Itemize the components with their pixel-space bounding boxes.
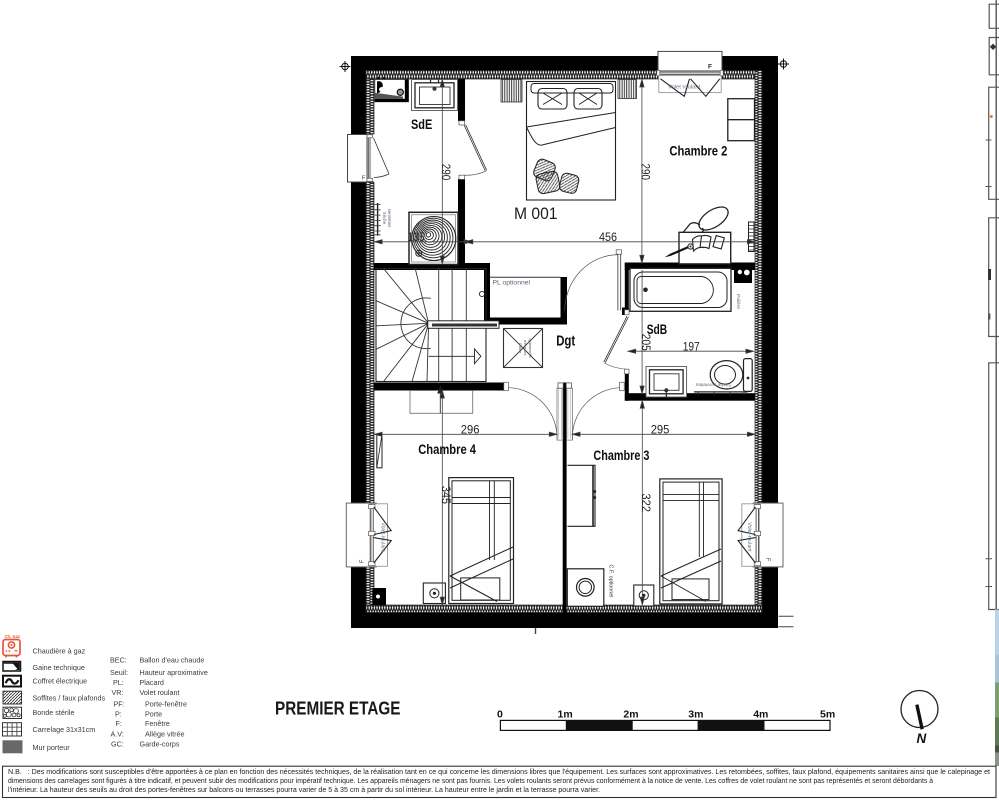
svg-text:Porte: Porte <box>145 709 162 718</box>
svg-text:3m: 3m <box>688 709 703 721</box>
svg-text:322: 322 <box>639 494 651 513</box>
svg-text:Fenêtre: Fenêtre <box>145 719 170 728</box>
svg-text:PL:: PL: <box>113 678 124 687</box>
svg-text:VR:: VR: <box>112 688 124 697</box>
svg-text:4m: 4m <box>753 709 768 721</box>
svg-text:PF:: PF: <box>114 700 125 709</box>
svg-text:Placard: Placard <box>140 678 164 687</box>
svg-text:C.F. optionnel: C.F. optionnel <box>608 565 614 598</box>
svg-text:Bonde stérile: Bonde stérile <box>33 708 75 717</box>
svg-text:197: 197 <box>683 341 700 353</box>
svg-text:295: 295 <box>651 425 670 437</box>
svg-text:F: F <box>708 64 712 71</box>
svg-text:Mur porteur: Mur porteur <box>33 743 71 752</box>
svg-text:Sèche: Sèche <box>382 212 387 225</box>
svg-text:Allège vitrée: Allège vitrée <box>145 729 185 738</box>
svg-text:5m: 5m <box>820 709 835 721</box>
svg-text:SdE: SdE <box>411 116 432 132</box>
svg-text:optionnelle: optionnelle <box>528 338 533 358</box>
svg-text:135: 135 <box>408 232 425 244</box>
svg-text:Sèche serviettes: Sèche serviettes <box>695 382 731 388</box>
svg-text:SdB: SdB <box>647 321 668 337</box>
svg-text:Hauteur aproximative: Hauteur aproximative <box>140 668 208 677</box>
svg-text:Soffites / faux plafonds: Soffites / faux plafonds <box>33 694 106 703</box>
svg-text:A.V:: A.V: <box>111 729 124 738</box>
svg-text:Chaudière à gaz: Chaudière à gaz <box>33 647 86 656</box>
svg-text:Porte-fenêtre: Porte-fenêtre <box>145 700 187 709</box>
svg-text:M 001: M 001 <box>514 205 558 223</box>
svg-text:l'intérieur. La hauteur des se: l'intérieur. La hauteur des seuils au dr… <box>8 787 600 794</box>
svg-text:1m: 1m <box>558 709 573 721</box>
svg-text:PL optionnel: PL optionnel <box>493 280 531 287</box>
svg-text:Gaine technique: Gaine technique <box>33 663 85 672</box>
svg-text:Palière: Palière <box>735 294 741 309</box>
svg-text:456: 456 <box>599 232 617 244</box>
svg-text:Volet roulant: Volet roulant <box>140 688 180 697</box>
svg-text:N.B. : Des modifications son: N.B. : Des modifications sont susceptibl… <box>8 769 990 776</box>
svg-text:serviettes: serviettes <box>387 209 392 229</box>
svg-text:Chambre 3: Chambre 3 <box>593 447 649 463</box>
svg-text:Dgt: Dgt <box>556 333 575 349</box>
svg-text:Chambre 4: Chambre 4 <box>418 441 476 457</box>
svg-text:Volet-roulant: Volet-roulant <box>380 522 386 552</box>
svg-text:Coffret électrique: Coffret électrique <box>33 677 88 686</box>
svg-text:296: 296 <box>461 425 480 437</box>
svg-text:Gaine: Gaine <box>518 343 523 354</box>
svg-text:Seuil:: Seuil: <box>110 668 128 677</box>
svg-text:N: N <box>917 731 927 746</box>
svg-text:290: 290 <box>639 164 651 181</box>
svg-text:290: 290 <box>439 164 451 181</box>
svg-text:Garde-corps: Garde-corps <box>140 739 180 748</box>
svg-text:F:: F: <box>116 719 122 728</box>
svg-text:P:: P: <box>115 709 122 718</box>
svg-text:Carrelage 31x31cm: Carrelage 31x31cm <box>33 725 96 734</box>
svg-text:2m: 2m <box>623 709 638 721</box>
svg-text:Ch. Gaz: Ch. Gaz <box>5 634 21 639</box>
svg-text:Chambre 2: Chambre 2 <box>669 143 727 159</box>
svg-text:PREMIER ETAGE: PREMIER ETAGE <box>275 699 401 719</box>
svg-text:Ballon d'eau chaude: Ballon d'eau chaude <box>140 656 205 665</box>
svg-text:Volet-roulant: Volet-roulant <box>746 522 752 552</box>
svg-text:d'extract.: d'extract. <box>523 340 528 356</box>
svg-text:BEC:: BEC: <box>110 656 127 665</box>
svg-text:dimensions des carrelages sont: dimensions des carrelages sont figurés à… <box>8 778 933 785</box>
svg-text:GC:: GC: <box>111 739 124 748</box>
svg-text:345: 345 <box>439 486 451 504</box>
svg-text:0: 0 <box>497 709 503 721</box>
